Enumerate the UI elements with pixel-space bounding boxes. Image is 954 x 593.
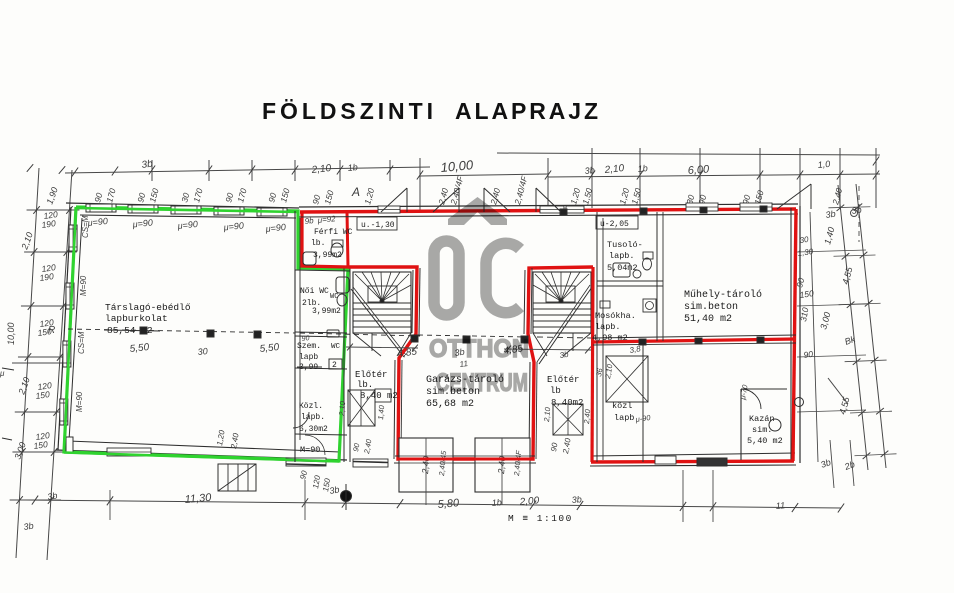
svg-text:μ: μ [0,369,5,378]
svg-text:8,40 m2: 8,40 m2 [360,391,398,401]
svg-text:3,99m2: 3,99m2 [312,307,341,316]
svg-text:CS=M: CS=M [81,215,90,238]
svg-text:lapb: lapb [614,413,634,423]
svg-text:CS=M: CS=M [77,331,86,354]
svg-text:190: 190 [39,271,55,283]
svg-text:CENTRUM: CENTRUM [436,369,528,397]
svg-text:Szem.: Szem. [297,342,321,351]
svg-text:5,04m2: 5,04m2 [607,263,638,273]
svg-text:2,00: 2,00 [518,495,540,508]
svg-text:5,50: 5,50 [259,342,280,355]
svg-text:2,10: 2,10 [603,163,625,176]
svg-text:u.-1,30: u.-1,30 [361,221,395,230]
svg-text:közl: közl [612,401,632,411]
svg-text:lb: lb [550,386,561,396]
svg-text:3b: 3b [825,209,836,220]
svg-text:M ≡ 1:100: M ≡ 1:100 [508,513,573,524]
svg-text:Előtér: Előtér [547,375,579,385]
svg-text:150: 150 [33,439,49,451]
svg-text:5,80: 5,80 [437,497,460,511]
svg-text:2: 2 [332,361,337,370]
svg-text:6,00: 6,00 [687,163,710,177]
svg-text:Előtér: Előtér [355,370,387,380]
svg-text:1b: 1b [637,163,648,174]
svg-text:WC: WC [330,293,338,301]
svg-text:M=90: M=90 [79,275,88,296]
svg-text:u-2,05: u-2,05 [600,220,629,229]
svg-text:R: R [48,325,55,336]
svg-text:3b: 3b [571,494,582,505]
svg-text:2,10: 2,10 [542,406,552,423]
svg-text:9b: 9b [304,216,314,226]
svg-text:3,99m2: 3,99m2 [313,251,342,260]
svg-text:10,00: 10,00 [6,322,16,345]
svg-text:190: 190 [41,218,57,230]
svg-text:Női WC: Női WC [300,287,329,296]
svg-text:150: 150 [799,288,815,300]
svg-text:sim.beton: sim.beton [684,301,738,313]
svg-text:90: 90 [301,335,310,343]
svg-text:Mosókha.: Mosókha. [595,311,636,321]
svg-text:lapb.: lapb. [595,322,621,332]
svg-text:Társlagó-ebédlő: Társlagó-ebédlő [105,302,191,313]
svg-text:150: 150 [35,389,51,401]
svg-text:10,00: 10,00 [440,157,474,175]
svg-text:lapb.: lapb. [609,251,635,261]
svg-text:90: 90 [803,349,814,360]
svg-text:2,10: 2,10 [337,400,347,417]
svg-text:11,30: 11,30 [184,492,213,506]
svg-text:Kazán: Kazán [749,414,775,424]
svg-text:lapb.: lapb. [301,413,325,422]
svg-text:lb.: lb. [357,380,373,390]
svg-text:30: 30 [799,235,810,245]
svg-text:1b: 1b [347,162,358,173]
svg-text:11: 11 [775,500,785,511]
svg-text:Tusoló-: Tusoló- [607,240,643,250]
svg-text:lapburkolat: lapburkolat [105,313,168,324]
svg-text:6,30m2: 6,30m2 [299,425,328,434]
svg-text:5,50: 5,50 [129,342,150,355]
svg-text:lb.: lb. [311,239,325,248]
svg-text:Férfi WC: Férfi WC [314,228,353,237]
svg-text:4,98 m2: 4,98 m2 [592,333,628,343]
svg-text:3,99: 3,99 [299,363,318,372]
svg-text:5,40 m2: 5,40 m2 [747,436,783,446]
svg-text:Műhely-tároló: Műhely-tároló [684,289,762,301]
svg-text:Közl.: Közl. [299,402,323,411]
svg-text:3b: 3b [141,158,154,171]
svg-text:2,10: 2,10 [310,163,332,176]
svg-text:1b: 1b [491,497,502,508]
svg-text:30: 30 [197,346,208,357]
svg-text:1,40: 1,40 [376,404,386,420]
svg-text:65,68 m2: 65,68 m2 [426,399,474,410]
svg-text:M=90: M=90 [75,391,84,412]
svg-text:OTTHON: OTTHON [429,335,529,363]
svg-text:51,40 m2: 51,40 m2 [684,314,732,325]
svg-text:3b: 3b [23,521,34,532]
svg-text:A: A [351,185,360,199]
svg-text:WC: WC [331,343,341,351]
svg-text:3b: 3b [47,490,59,502]
svg-text:3b: 3b [559,350,570,360]
svg-text:lapb: lapb [299,353,318,362]
svg-text:1,0: 1,0 [817,159,830,170]
svg-text:M=90: M=90 [300,445,320,455]
svg-text:3b: 3b [584,165,595,176]
